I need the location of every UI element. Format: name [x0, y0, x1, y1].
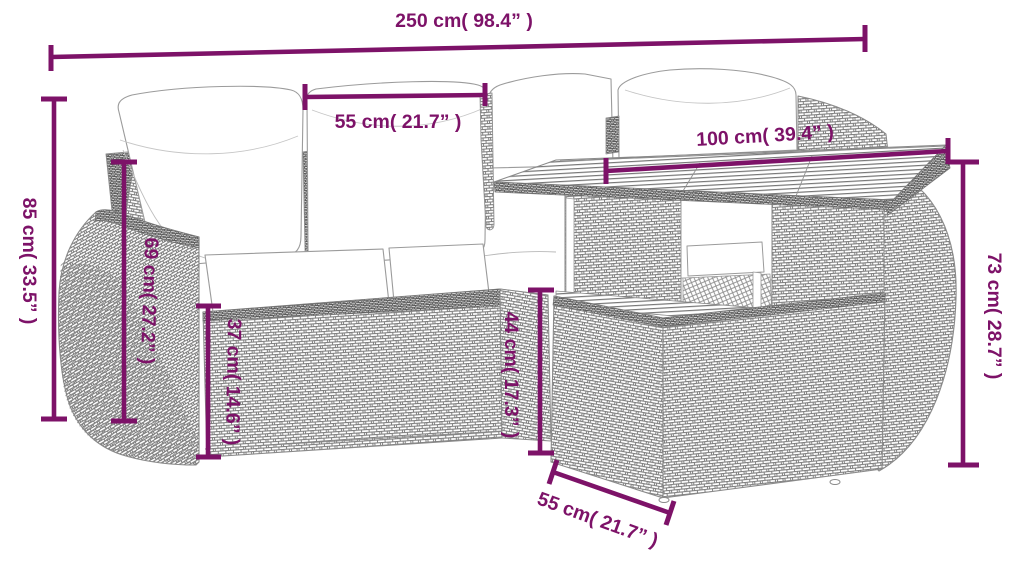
svg-text:85 cm( 33.5” ): 85 cm( 33.5” ) [18, 198, 40, 325]
svg-text:55 cm( 21.7” ): 55 cm( 21.7” ) [335, 111, 462, 133]
svg-text:37 cm( 14.6” ): 37 cm( 14.6” ) [221, 318, 245, 445]
svg-text:44 cm( 17.3” ): 44 cm( 17.3” ) [500, 312, 522, 439]
svg-text:69 cm( 27.2” ): 69 cm( 27.2” ) [136, 237, 162, 365]
svg-text:73 cm( 28.7” ): 73 cm( 28.7” ) [983, 253, 1005, 380]
svg-text:250 cm( 98.4” ): 250 cm( 98.4” ) [395, 10, 533, 32]
